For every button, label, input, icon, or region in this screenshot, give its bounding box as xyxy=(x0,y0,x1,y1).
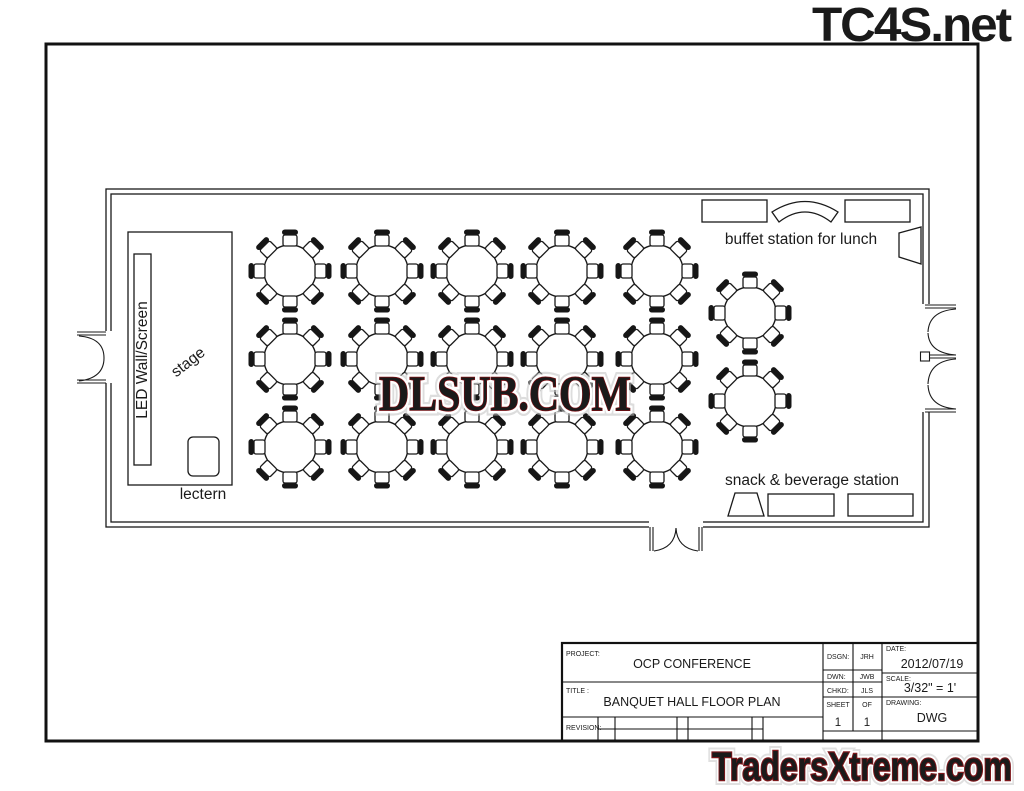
drawing-page: buffet station for lunch snack & beverag… xyxy=(0,0,1024,791)
snack-trapezoid xyxy=(728,493,764,516)
project-label: PROJECT: xyxy=(566,651,600,658)
sheet-label: SHEET xyxy=(826,702,850,709)
buffet-table-left xyxy=(702,200,767,222)
round-table xyxy=(431,230,514,313)
round-table xyxy=(709,360,792,443)
traders-logo-text: TradersXtreme.com xyxy=(712,745,1012,789)
of-label: OF xyxy=(862,702,872,709)
snack-table-2 xyxy=(848,494,913,516)
lectern-shape xyxy=(188,437,219,476)
snack-station-label: snack & beverage station xyxy=(725,472,899,489)
dwn-value: JWB xyxy=(860,674,875,681)
drawing-label: DRAWING: xyxy=(886,700,922,707)
watermark-tradersxtreme: TradersXtreme.com TradersXtreme.com Trad… xyxy=(712,745,1012,789)
watermark-tc4s: TC4S.net xyxy=(812,0,1012,52)
scale-value: 3/32" = 1' xyxy=(904,681,956,695)
chkd-label: CHKD: xyxy=(827,688,849,695)
round-table xyxy=(341,230,424,313)
door-left-double xyxy=(77,332,106,383)
snack-table-1 xyxy=(768,494,834,516)
corner-trapezoid-shape xyxy=(899,227,921,264)
title-value: BANQUET HALL FLOOR PLAN xyxy=(603,695,780,709)
project-value: OCP CONFERENCE xyxy=(633,657,751,671)
buffet-station-label: buffet station for lunch xyxy=(725,231,877,248)
round-table xyxy=(521,230,604,313)
round-table xyxy=(709,272,792,355)
floor-plan-canvas: buffet station for lunch snack & beverag… xyxy=(0,0,1024,791)
chkd-value: JLS xyxy=(861,688,873,695)
tc4s-logo-text: TC4S.net xyxy=(812,0,1012,52)
date-label: DATE: xyxy=(886,646,906,653)
revision-label: REVISION: xyxy=(566,725,601,732)
date-value: 2012/07/19 xyxy=(901,657,964,671)
buffet-table-curved xyxy=(772,202,838,223)
buffet-table-right xyxy=(845,200,910,222)
round-table xyxy=(249,230,332,313)
dwn-label: DWN: xyxy=(827,674,846,681)
dlsub-logo-text: DLSUB.COM xyxy=(379,365,631,421)
watermark-dlsub: DLSUB.COM DLSUB.COM DLSUB.COM xyxy=(379,365,631,421)
dining-tables-layer xyxy=(249,230,792,489)
title-label: TITLE : xyxy=(566,688,589,695)
drawing-value: DWG xyxy=(917,711,948,725)
lectern-label: lectern xyxy=(180,486,227,503)
of-number: 1 xyxy=(864,717,870,729)
round-table xyxy=(616,230,699,313)
dsgn-value: JRH xyxy=(860,654,874,661)
round-table xyxy=(249,406,332,489)
dsgn-label: DSGN: xyxy=(827,654,849,661)
round-table xyxy=(249,318,332,401)
sheet-number: 1 xyxy=(835,717,841,729)
snack-station-shapes xyxy=(728,493,913,516)
led-wall-label: LED Wall/Screen xyxy=(134,301,151,418)
title-block: PROJECT: OCP CONFERENCE TITLE : BANQUET … xyxy=(562,643,978,741)
door-bottom-double xyxy=(650,527,702,551)
